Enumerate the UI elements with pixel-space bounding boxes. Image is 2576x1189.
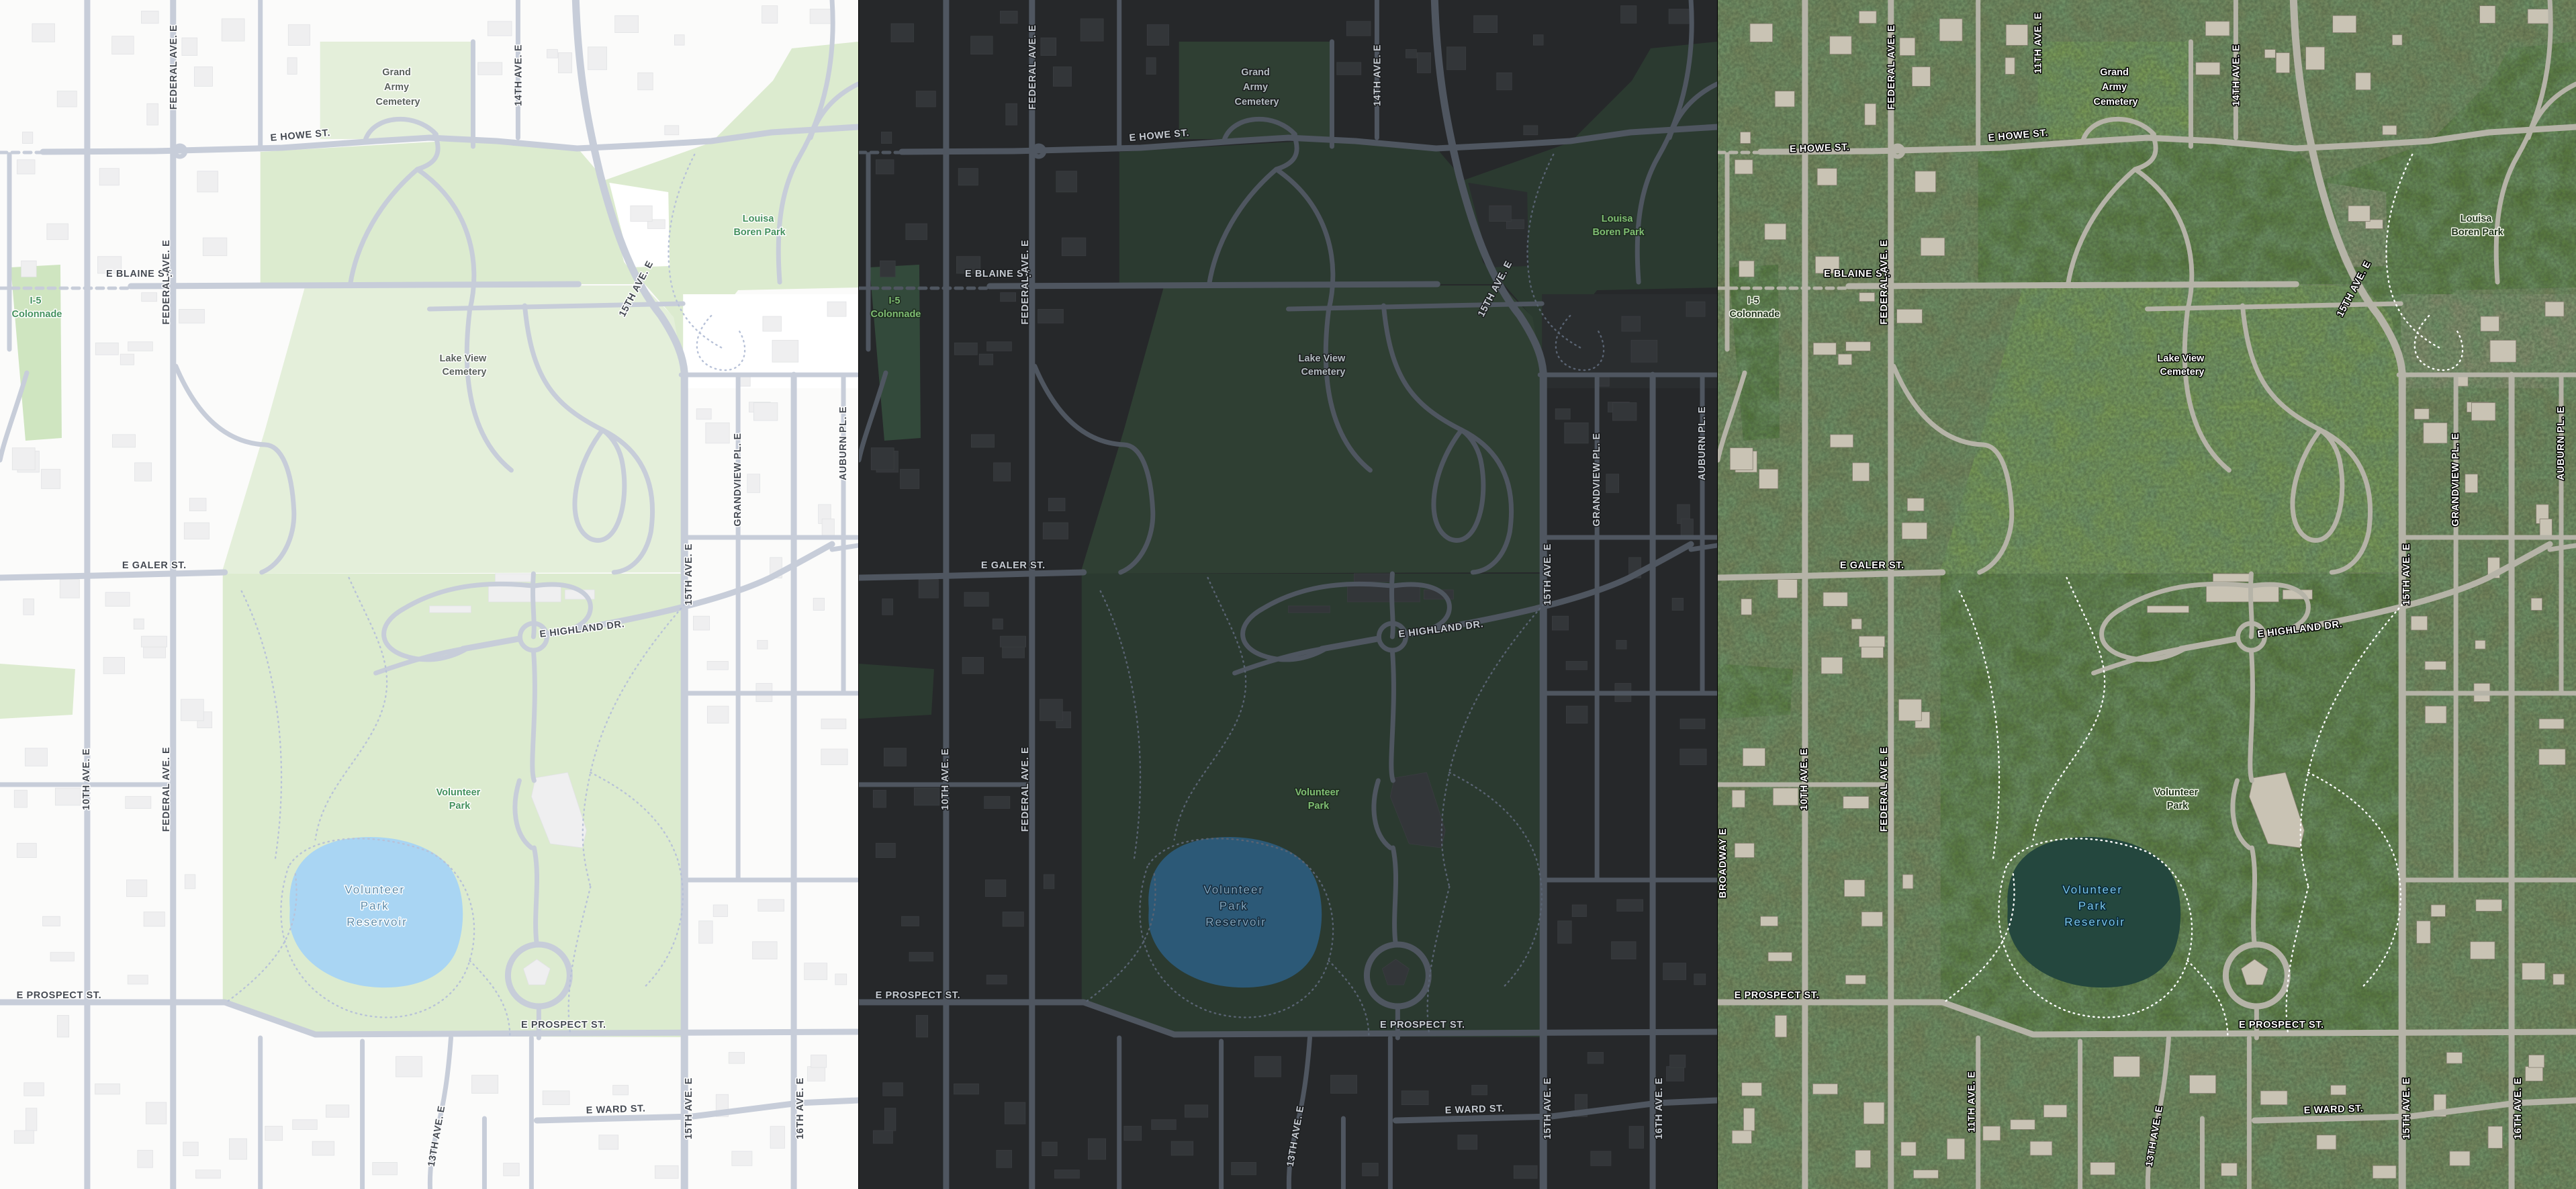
panel-dark-street-map[interactable]: [858, 0, 1717, 1189]
panel-satellite-map[interactable]: [1717, 0, 2576, 1189]
map-comparison-view: [0, 0, 2576, 1189]
light-map-canvas[interactable]: [0, 0, 858, 1189]
satellite-map-canvas[interactable]: [1718, 0, 2576, 1189]
dark-map-canvas[interactable]: [859, 0, 1717, 1189]
panel-light-street-map[interactable]: [0, 0, 858, 1189]
